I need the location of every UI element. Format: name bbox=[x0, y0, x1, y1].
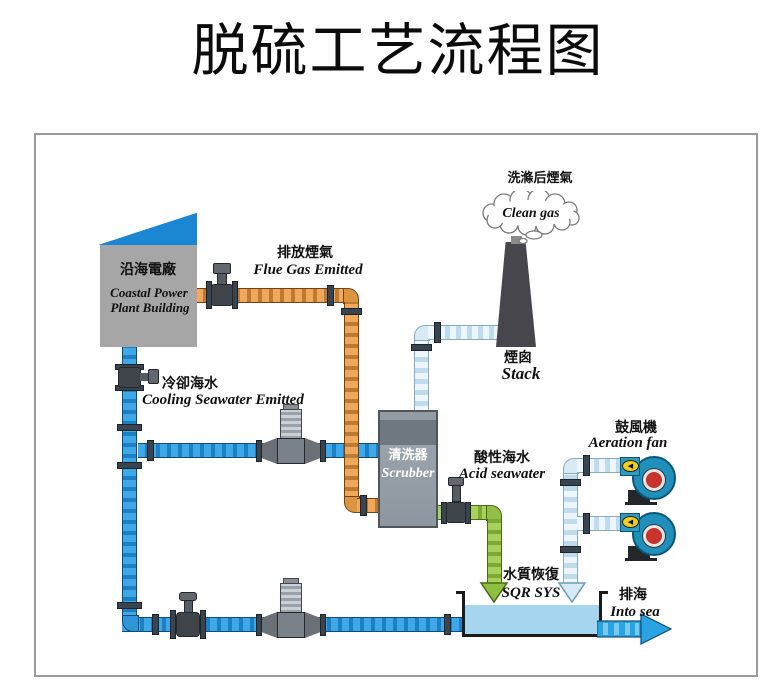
label-fan-cn: 鼓風機 bbox=[615, 420, 657, 435]
valve-bonnet bbox=[452, 484, 461, 502]
flange bbox=[560, 546, 581, 553]
label-acid-en: Acid seawater bbox=[459, 466, 545, 483]
fan-direction-badge: ◀ bbox=[622, 460, 639, 472]
valve-bonnet bbox=[184, 599, 193, 613]
flange bbox=[341, 308, 362, 315]
flange bbox=[117, 462, 142, 469]
pump-flange bbox=[320, 614, 326, 636]
pump-cap bbox=[283, 578, 299, 584]
aeration-fan-2: ◀ bbox=[620, 508, 680, 562]
pump-flange bbox=[256, 440, 262, 462]
aeration-fan-1: ◀ bbox=[620, 452, 680, 506]
label-cooling-en: Cooling Seawater Emitted bbox=[142, 392, 304, 409]
tank-lip-right bbox=[599, 591, 608, 594]
pipe-aeration-vertical bbox=[563, 472, 578, 585]
label-cooling-cn: 冷卻海水 bbox=[162, 376, 218, 391]
desulfurization-flow-diagram: 脱硫工艺流程图 bbox=[0, 0, 783, 696]
label-sea-cn: 排海 bbox=[619, 587, 647, 602]
flange bbox=[327, 285, 334, 306]
valve-flange bbox=[200, 610, 206, 639]
flange bbox=[560, 479, 581, 486]
tank-water bbox=[465, 605, 599, 634]
label-sqr-en: SQR SYS bbox=[502, 585, 561, 602]
label-plant-en1: Coastal Power bbox=[110, 286, 188, 300]
page-title: 脱硫工艺流程图 bbox=[192, 5, 605, 87]
label-scrubber-cn: 清洗器 bbox=[388, 448, 427, 462]
label-acid-cn: 酸性海水 bbox=[474, 450, 530, 465]
pipe-acid-vertical bbox=[487, 519, 502, 585]
label-sea-en: Into sea bbox=[610, 604, 660, 621]
valve-wheel bbox=[179, 592, 197, 601]
label-fan-en: Aeration fan bbox=[589, 435, 668, 452]
flange bbox=[434, 322, 441, 343]
valve-bottom-pipe bbox=[176, 612, 200, 637]
pump-motor bbox=[280, 583, 302, 614]
fan-hub bbox=[643, 469, 665, 491]
pump-flange bbox=[256, 614, 262, 636]
label-stack-en: Stack bbox=[502, 365, 541, 384]
fan-foot bbox=[625, 502, 657, 505]
fan-direction-badge: ◀ bbox=[622, 516, 639, 528]
valve-flue-pipe bbox=[211, 284, 233, 306]
pump-body-mid bbox=[277, 438, 305, 464]
flange bbox=[152, 614, 159, 635]
flange bbox=[147, 440, 154, 461]
label-sqr-cn: 水質恢復 bbox=[503, 567, 559, 582]
tank-lip-left bbox=[456, 591, 465, 594]
pump-motor bbox=[280, 409, 302, 440]
label-flue-en: Flue Gas Emitted bbox=[253, 262, 362, 279]
valve-acid-pipe bbox=[446, 502, 466, 523]
valve-cooling-pipe bbox=[118, 367, 141, 388]
flange bbox=[117, 602, 142, 609]
flange bbox=[117, 424, 142, 431]
fan-foot bbox=[625, 558, 657, 561]
label-plant-cn: 沿海電廠 bbox=[120, 262, 176, 277]
fan-hub bbox=[643, 525, 665, 547]
flange bbox=[583, 513, 590, 534]
flange bbox=[360, 495, 367, 516]
flange bbox=[411, 344, 432, 351]
label-scrubber-en: Scrubber bbox=[382, 466, 435, 481]
label-clean-gas-cn: 洗滌后煙氣 bbox=[507, 171, 572, 185]
pipe-flue-vertical bbox=[344, 302, 359, 498]
aeration-down-arrow-icon bbox=[556, 582, 588, 604]
pump-flange bbox=[320, 440, 326, 462]
valve-handle bbox=[148, 369, 159, 384]
flange bbox=[583, 455, 590, 476]
label-plant-en2: Plant Building bbox=[110, 301, 189, 315]
pump-body-bottom bbox=[277, 612, 305, 638]
label-clean-gas-en: Clean gas bbox=[502, 206, 559, 221]
valve-actuator bbox=[213, 263, 231, 274]
label-flue-cn: 排放煙氣 bbox=[277, 245, 333, 260]
flange bbox=[444, 614, 451, 635]
